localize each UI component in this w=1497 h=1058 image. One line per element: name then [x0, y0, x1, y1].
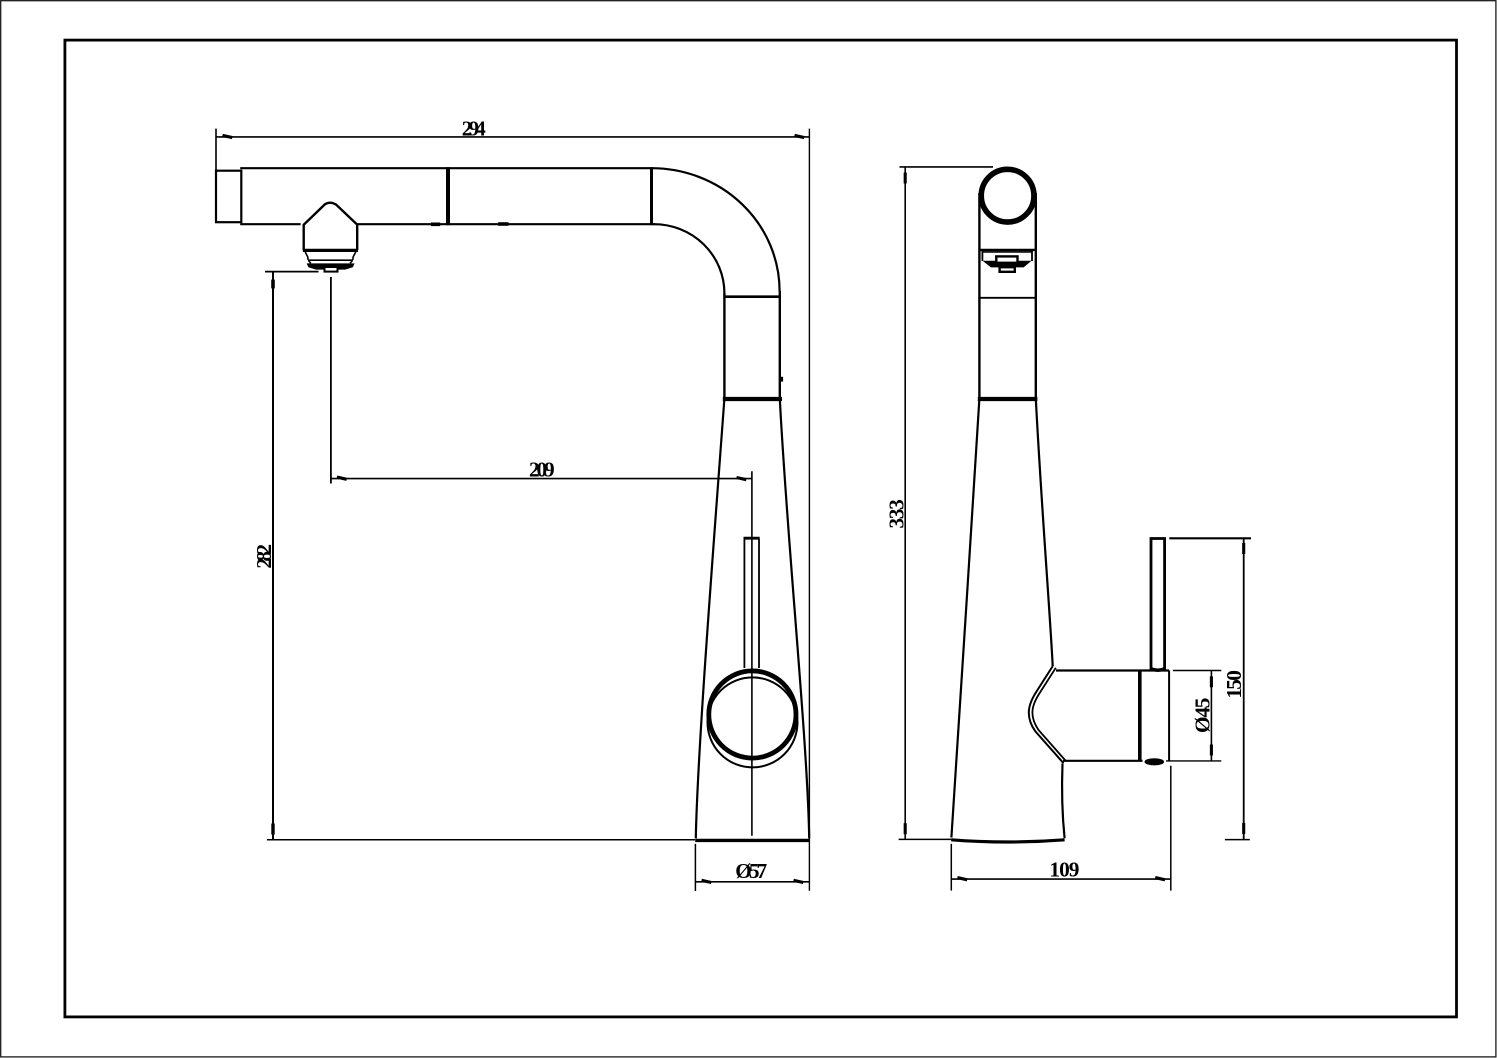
svg-text:333: 333: [885, 499, 909, 529]
svg-text:109: 109: [1049, 858, 1079, 882]
svg-text:282: 282: [252, 544, 276, 569]
svg-text:Ø57: Ø57: [735, 859, 767, 883]
svg-text:294: 294: [462, 117, 486, 141]
svg-text:Ø45: Ø45: [1190, 698, 1214, 734]
svg-text:150: 150: [1222, 670, 1246, 699]
svg-text:209: 209: [529, 458, 555, 482]
